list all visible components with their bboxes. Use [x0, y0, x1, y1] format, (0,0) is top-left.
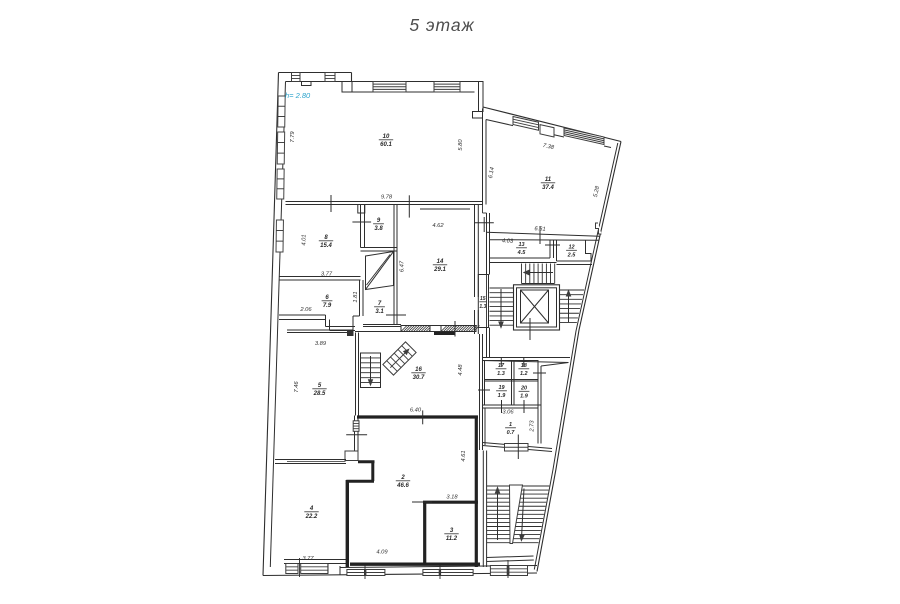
- svg-text:60.1: 60.1: [380, 142, 392, 148]
- svg-text:4.01: 4.01: [302, 234, 308, 245]
- svg-text:0.7: 0.7: [507, 430, 516, 436]
- svg-text:19: 19: [498, 385, 505, 391]
- svg-text:1.9: 1.9: [498, 393, 507, 399]
- svg-text:18: 18: [521, 363, 528, 369]
- svg-text:3.06: 3.06: [502, 410, 514, 416]
- svg-text:4.03: 4.03: [502, 238, 514, 244]
- svg-text:22.2: 22.2: [305, 514, 318, 520]
- svg-text:15.4: 15.4: [320, 243, 332, 249]
- svg-text:1.2: 1.2: [520, 371, 528, 377]
- svg-text:11.2: 11.2: [446, 536, 458, 542]
- svg-text:4.48: 4.48: [458, 364, 464, 376]
- svg-text:16: 16: [415, 367, 422, 373]
- svg-text:1: 1: [509, 422, 512, 428]
- svg-text:2.73: 2.73: [530, 420, 536, 433]
- svg-text:6.47: 6.47: [400, 260, 406, 272]
- svg-text:4.09: 4.09: [376, 550, 388, 556]
- svg-text:5 этаж: 5 этаж: [409, 15, 474, 35]
- svg-text:6.40: 6.40: [410, 408, 422, 414]
- svg-text:3.89: 3.89: [315, 341, 327, 347]
- svg-text:4: 4: [309, 506, 314, 512]
- svg-text:3.1: 3.1: [375, 309, 384, 315]
- svg-text:3.18: 3.18: [446, 495, 458, 501]
- svg-text:h= 2.80: h= 2.80: [285, 91, 311, 100]
- svg-text:6.61: 6.61: [534, 226, 545, 232]
- svg-text:37.4: 37.4: [542, 185, 554, 191]
- svg-text:4.61: 4.61: [461, 450, 467, 461]
- svg-text:4.62: 4.62: [432, 223, 444, 229]
- svg-text:3.77: 3.77: [321, 272, 333, 278]
- svg-text:9.78: 9.78: [381, 195, 393, 201]
- svg-text:7.9: 7.9: [323, 303, 332, 309]
- svg-text:7.79: 7.79: [290, 131, 296, 143]
- svg-text:17: 17: [498, 363, 505, 369]
- svg-text:46.6: 46.6: [396, 483, 409, 489]
- svg-text:11: 11: [545, 177, 552, 183]
- svg-text:30.7: 30.7: [413, 375, 425, 381]
- svg-text:2.06: 2.06: [299, 307, 312, 313]
- svg-text:13: 13: [518, 242, 524, 248]
- svg-text:14: 14: [437, 259, 444, 265]
- svg-text:1.9: 1.9: [520, 394, 529, 400]
- svg-text:1.3: 1.3: [497, 371, 505, 377]
- svg-text:15: 15: [480, 296, 486, 302]
- svg-text:2.5: 2.5: [567, 253, 577, 259]
- svg-text:3.77: 3.77: [302, 556, 314, 562]
- svg-text:12: 12: [568, 245, 574, 251]
- svg-text:1.81: 1.81: [353, 291, 359, 302]
- svg-text:10: 10: [383, 134, 390, 140]
- svg-text:5.80: 5.80: [458, 139, 464, 151]
- svg-text:7.46: 7.46: [294, 381, 300, 393]
- svg-text:1.3: 1.3: [479, 304, 486, 310]
- svg-text:28.5: 28.5: [313, 391, 326, 397]
- svg-text:3.8: 3.8: [374, 226, 383, 232]
- svg-text:29.1: 29.1: [433, 267, 446, 273]
- svg-text:20: 20: [520, 386, 527, 392]
- svg-text:4.5: 4.5: [517, 250, 527, 256]
- svg-text:2: 2: [400, 475, 405, 481]
